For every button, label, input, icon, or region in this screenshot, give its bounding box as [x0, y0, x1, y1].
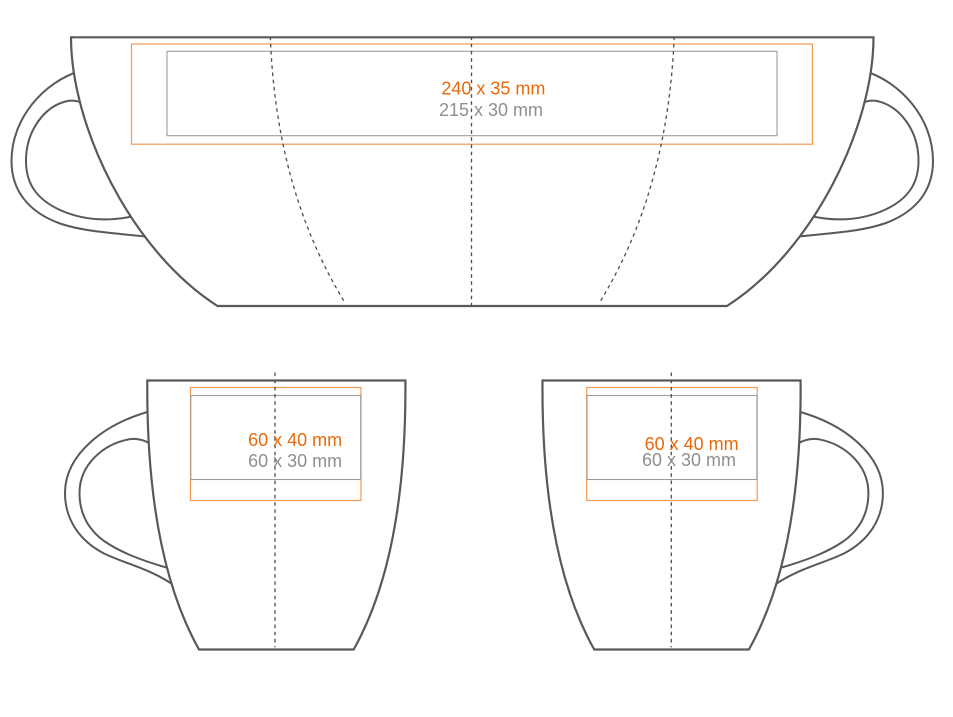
svg-text:240 x 35 mm: 240 x 35 mm [441, 79, 545, 99]
svg-text:60 x 30 mm: 60 x 30 mm [248, 451, 342, 471]
svg-text:60 x 30 mm: 60 x 30 mm [642, 450, 736, 470]
svg-text:215 x 30 mm: 215 x 30 mm [439, 100, 543, 120]
svg-text:60 x 40 mm: 60 x 40 mm [248, 430, 342, 450]
